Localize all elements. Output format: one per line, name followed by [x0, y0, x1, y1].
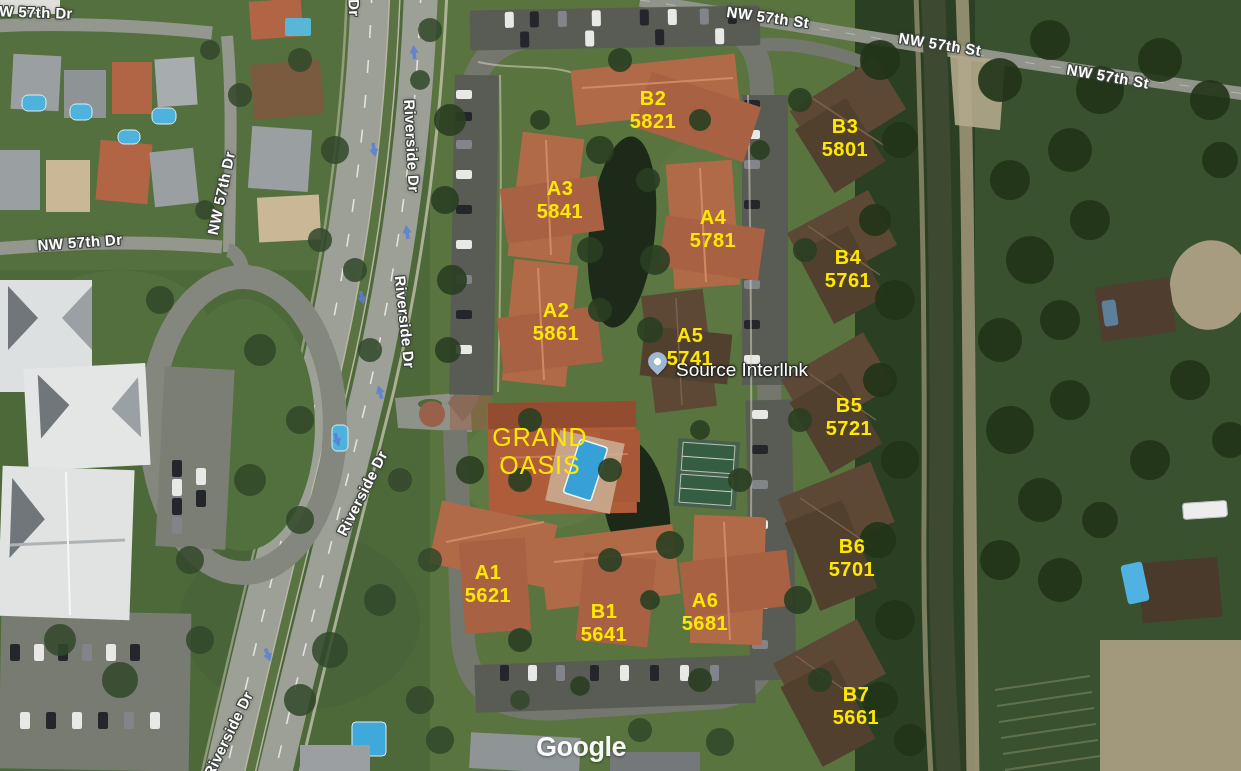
building-label-a6: A65681: [682, 589, 729, 635]
complex-name-label: GRAND OASIS: [492, 423, 587, 479]
street-label-riverside-dr-top: Riverside Dr: [401, 99, 423, 193]
building-label-a2: A25861: [533, 299, 580, 345]
street-label-nw-57th-dr-bottom: NW 57th Dr: [37, 231, 123, 254]
satellite-map[interactable]: W 57th Dr NW 57th Dr NW 57th Dr NW 57th …: [0, 0, 1241, 771]
building-label-a1: A15621: [465, 561, 512, 607]
building-label-a5: A55741: [667, 324, 714, 370]
building-label-b7: B75661: [833, 683, 880, 729]
street-label-nw-57th-st-2: NW 57th St: [898, 29, 983, 59]
building-label-b4: B45761: [825, 246, 872, 292]
street-label-w-57th-dr: W 57th Dr: [0, 2, 73, 22]
street-label-nw-57th-st-1: NW 57th St: [726, 3, 811, 31]
building-label-b2: B25821: [630, 87, 677, 133]
building-label-b3: B35801: [822, 115, 869, 161]
google-watermark[interactable]: Google: [536, 732, 626, 763]
street-label-riverside-dr-mid: Riverside Dr: [392, 275, 419, 369]
street-label-riverside-dr-bottom: Riverside Dr: [200, 688, 256, 771]
building-label-b5: B55721: [826, 394, 873, 440]
building-label-b1: B15641: [581, 600, 628, 646]
street-label-riverside-dr-diagonal: Riverside Dr: [333, 448, 390, 539]
street-label-nw-57th-dr-vertical: NW 57th Dr: [204, 150, 238, 237]
building-label-a3: A35841: [537, 177, 584, 223]
building-label-a4: A45781: [690, 206, 737, 252]
street-label-riverside-dr-top-edge: Riverside Dr: [343, 0, 363, 17]
building-label-b6: B65701: [829, 535, 876, 581]
label-overlay: W 57th Dr NW 57th Dr NW 57th Dr NW 57th …: [0, 0, 1241, 771]
street-label-nw-57th-st-3: NW 57th St: [1066, 60, 1151, 91]
